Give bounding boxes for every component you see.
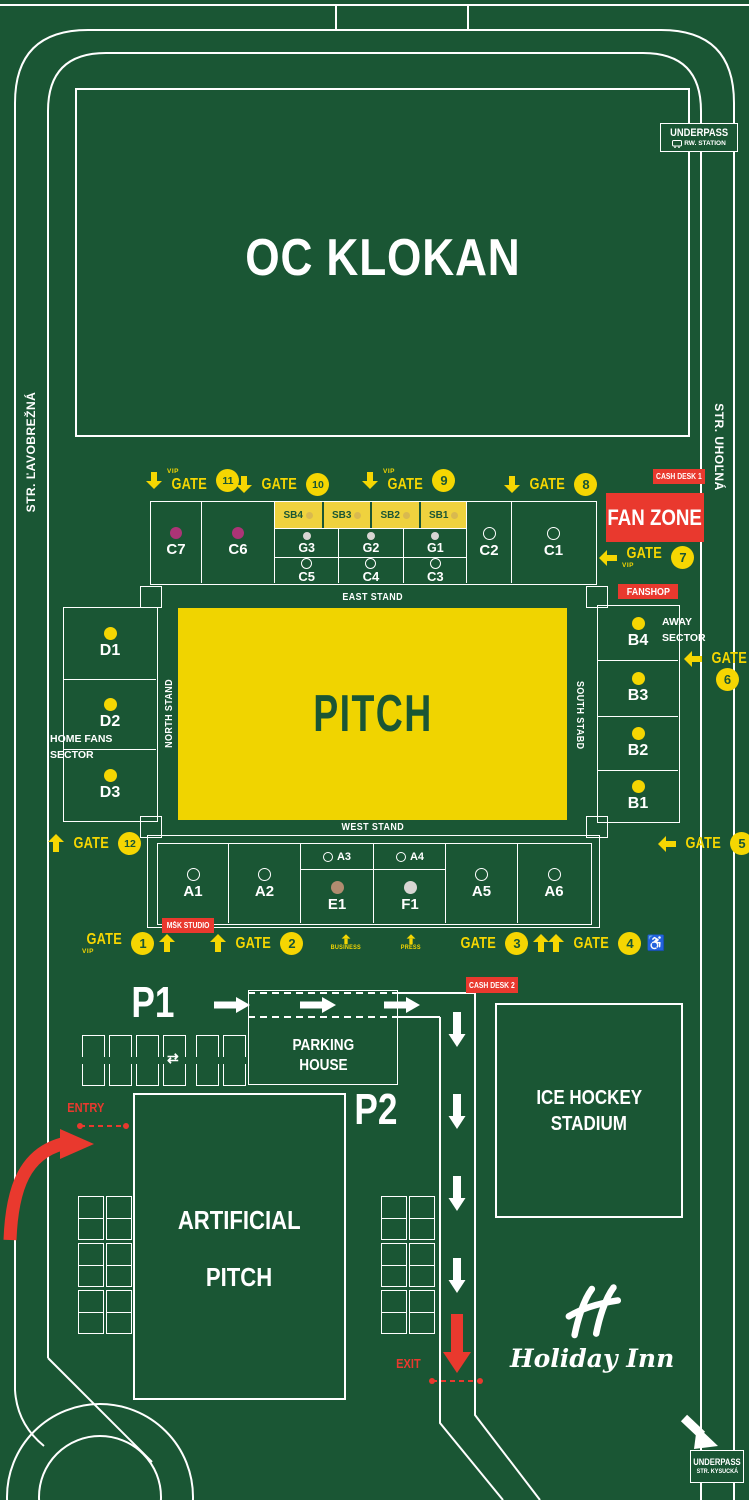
exit-arrow-icon — [451, 1314, 463, 1353]
section-label: B1 — [628, 795, 648, 813]
gate-7: GATEVIP 7 — [601, 546, 694, 570]
skybox-row: SB4 SB3 SB2 SB1 — [275, 502, 467, 528]
underpass-station-title: UNDERPASS — [670, 127, 728, 139]
underpass-kysucka-title: UNDERPASS — [693, 1457, 740, 1468]
section-label: D2 — [100, 713, 120, 731]
gate-number-8: 8 — [574, 473, 597, 496]
seat-circle-outline — [548, 868, 561, 881]
left-arrow-icon — [686, 651, 702, 668]
seat-dot-magenta — [170, 527, 182, 539]
stand-corner — [140, 586, 162, 608]
business-entrance: BUSINESS — [331, 931, 361, 951]
a-top-row: A3 A4 — [301, 844, 446, 870]
vip-label: VIP — [622, 563, 634, 570]
section-label: C6 — [228, 541, 247, 558]
street-left-label: STR. ĽAVOBREŽNÁ — [24, 377, 38, 527]
seat-dot-yellow — [104, 769, 117, 782]
exit-arrow-icon — [443, 1352, 471, 1373]
pitch-label: PITCH — [313, 684, 433, 744]
down-arrow-icon — [449, 1176, 466, 1211]
skybox-sb3: SB3 — [324, 502, 371, 528]
gate-1: GATEVIP 1 — [82, 932, 175, 956]
up-arrow-icon — [342, 935, 351, 944]
seat-dot-gold — [354, 512, 361, 519]
up-arrow-icon — [548, 935, 564, 952]
up-arrow-icon — [159, 935, 175, 952]
away-sector-label: AWAY SECTOR — [662, 615, 706, 647]
gate-number-5: 5 — [730, 832, 749, 855]
skybox-label: SB2 — [381, 510, 400, 521]
seat-circle-outline — [258, 868, 271, 881]
gate-9: VIPGATE 9 — [362, 469, 455, 493]
holiday-inn-label: Holiday Inn — [510, 1344, 670, 1373]
section-a4: A4 — [373, 844, 446, 869]
gate-word: GATE — [387, 477, 423, 493]
seat-dot-white — [303, 532, 311, 540]
two-way-arrow-icon: ⇄ — [167, 1050, 179, 1067]
section-a5: A5 — [445, 844, 517, 923]
cash-desk-1: CASH DESK 1 — [653, 469, 705, 484]
gate-2: GATE 2 — [210, 932, 303, 955]
gate-11: VIPGATE 11 — [146, 469, 239, 493]
wheelchair-icon: ♿ — [646, 936, 665, 951]
gate-word: GATE — [711, 650, 747, 668]
d-sections-block: D1 D2 D3 — [63, 607, 158, 822]
fan-zone: FAN ZONE — [606, 493, 704, 542]
gate-word: GATE — [235, 935, 271, 953]
section-a1: A1 — [158, 844, 228, 923]
section-c6: C6 — [201, 502, 274, 583]
down-arrow-icon — [449, 1012, 466, 1047]
west-stand-block: A1 A2 A3 A4 E1 F1 A5 A6 — [157, 843, 592, 925]
section-label: E1 — [328, 896, 346, 913]
section-label: C1 — [544, 542, 563, 559]
up-arrow-icon — [210, 935, 226, 952]
vip-label: VIP — [82, 949, 94, 956]
parking-house-label: PARKING — [292, 1036, 354, 1056]
section-label: D3 — [100, 784, 120, 802]
parking-house-label: HOUSE — [299, 1056, 347, 1076]
section-label: F1 — [401, 896, 419, 913]
ice-hockey-stadium: ICE HOCKEY STADIUM — [495, 1003, 683, 1218]
gate-12: GATE 12 — [48, 832, 141, 855]
section-label: G1 — [427, 541, 444, 555]
seat-dot-yellow — [104, 698, 117, 711]
gate-word: GATE — [460, 935, 496, 953]
gate-number-7: 7 — [671, 546, 694, 569]
section-f1: F1 — [373, 870, 446, 923]
section-label: A1 — [183, 883, 202, 900]
section-label: A5 — [472, 883, 491, 900]
skybox-sb4: SB4 — [275, 502, 322, 528]
section-label: A6 — [544, 883, 563, 900]
section-g1: G1 — [403, 529, 467, 557]
gate-3: GATE 3 — [456, 932, 549, 955]
g-sections-row: G3 G2 G1 — [275, 528, 467, 558]
section-b1: B1 — [598, 770, 678, 821]
gate-4: GATE 4 ♿ — [548, 932, 665, 955]
skybox-label: SB3 — [332, 510, 351, 521]
gate-5: GATE 5 — [660, 832, 749, 855]
down-arrow-icon — [449, 1258, 466, 1293]
gate-word: GATE — [573, 935, 609, 953]
oc-klokan-label: OC KLOKAN — [133, 228, 633, 288]
skybox-sb1: SB1 — [421, 502, 468, 528]
entry-arrow-icon — [10, 1144, 62, 1240]
section-c1: C1 — [511, 502, 595, 583]
gate-word: GATE — [171, 477, 207, 493]
parking-house: PARKING HOUSE — [248, 990, 398, 1085]
artificial-pitch-label: PITCH — [139, 1262, 339, 1293]
stadium-area-map: OC KLOKAN UNDERPASS RW. STATION STR. ĽAV… — [0, 0, 749, 1500]
seat-dot-yellow — [632, 617, 645, 630]
seat-circle-outline — [323, 852, 333, 862]
gate-8: GATE 8 — [504, 473, 597, 496]
seat-circle-outline — [365, 558, 376, 569]
exit-label: EXIT — [394, 1356, 423, 1371]
seat-circle-outline — [430, 558, 441, 569]
down-arrow-icon — [236, 476, 252, 493]
ice-hockey-label: ICE HOCKEY — [536, 1087, 642, 1109]
seat-dot-white — [404, 881, 417, 894]
artificial-pitch — [133, 1093, 346, 1400]
seat-circle-outline — [475, 868, 488, 881]
gate-number-9: 9 — [432, 469, 455, 492]
section-b2: B2 — [598, 716, 678, 770]
left-arrow-icon — [660, 835, 676, 852]
underpass-kysucka-subtitle: STR. KYSUCKÁ — [696, 1468, 737, 1476]
east-stand-block: C7 C6 SB4 SB3 SB2 SB1 G3 G2 G1 C5 C4 C3 — [150, 501, 597, 585]
down-arrow-icon — [362, 472, 378, 489]
ef-block: A3 A4 E1 F1 — [300, 844, 445, 923]
gate-number-6: 6 — [716, 668, 739, 691]
south-stand-label: SOUTH STABD — [574, 655, 586, 775]
section-label: C7 — [166, 541, 185, 558]
section-b3: B3 — [598, 660, 678, 716]
section-e1: E1 — [301, 870, 373, 923]
gate-word: GATE — [86, 932, 122, 948]
seat-circle-outline — [396, 852, 406, 862]
seat-dot-yellow — [632, 780, 645, 793]
seat-circle-outline — [547, 527, 560, 540]
section-c4: C4 — [338, 558, 402, 583]
gate-word: GATE — [261, 476, 297, 494]
north-stand-label: NORTH STAND — [163, 653, 175, 773]
seat-dot-white — [431, 532, 439, 540]
ice-hockey-label: STADIUM — [551, 1113, 627, 1135]
underpass-kysucka-sign: UNDERPASS STR. KYSUCKÁ — [690, 1450, 744, 1483]
seat-circle-outline — [483, 527, 496, 540]
section-a6: A6 — [517, 844, 590, 923]
seat-dot-yellow — [632, 672, 645, 685]
gate-number-2: 2 — [280, 932, 303, 955]
section-c3: C3 — [403, 558, 467, 583]
roundabout-inner — [39, 1436, 161, 1500]
gate-word: GATE — [685, 835, 721, 853]
artificial-pitch-label: ARTIFICIAL — [139, 1205, 339, 1236]
underpass-station-subtitle: RW. STATION — [672, 140, 726, 148]
seat-dot-gold — [403, 512, 410, 519]
seat-dot-yellow — [632, 727, 645, 740]
section-label: A3 — [337, 851, 351, 863]
up-arrow-icon — [48, 835, 64, 852]
underpass-station-sign: UNDERPASS RW. STATION — [660, 123, 738, 152]
gate-number-1: 1 — [131, 932, 154, 955]
c-mid-row: C5 C4 C3 — [275, 558, 467, 583]
seat-circle-outline — [301, 558, 312, 569]
seat-dot-yellow — [104, 627, 117, 640]
section-label: C2 — [479, 542, 498, 559]
section-label: D1 — [100, 642, 120, 660]
roundabout-outer — [7, 1404, 193, 1500]
skybox-sb2: SB2 — [372, 502, 419, 528]
holiday-inn-logo-icon — [553, 1282, 625, 1342]
section-label: G2 — [363, 541, 380, 555]
press-label: PRESS — [401, 944, 421, 951]
seat-dot-white — [367, 532, 375, 540]
gate-number-3: 3 — [505, 932, 528, 955]
seat-dot-gold — [306, 512, 313, 519]
east-stand-middle: SB4 SB3 SB2 SB1 G3 G2 G1 C5 C4 C3 — [274, 502, 466, 583]
section-label: C3 — [427, 569, 444, 584]
east-stand-label: EAST STAND — [298, 591, 448, 603]
p2-label: P2 — [349, 1085, 403, 1135]
section-label: B2 — [628, 742, 648, 760]
underpass-arrow-icon — [694, 1426, 718, 1449]
section-a2: A2 — [228, 844, 300, 923]
gate-10: GATE 10 — [236, 473, 329, 496]
down-arrow-icon — [449, 1094, 466, 1129]
section-c7: C7 — [151, 502, 201, 583]
left-arrow-icon — [601, 549, 617, 566]
pitch: PITCH — [178, 608, 567, 820]
section-c2: C2 — [466, 502, 511, 583]
section-c5: C5 — [275, 558, 338, 583]
down-arrow-icon — [146, 472, 162, 489]
street-right-label: STR. UHOĽNÁ — [712, 372, 726, 522]
section-d1: D1 — [64, 608, 156, 679]
section-label: G3 — [298, 541, 315, 555]
west-stand-label: WEST STAND — [298, 821, 448, 833]
right-arrow-icon — [214, 997, 250, 1013]
cash-desk-2: CASH DESK 2 — [466, 977, 518, 993]
section-label: B4 — [628, 632, 648, 650]
fanshop: FANSHOP — [618, 584, 678, 599]
business-label: BUSINESS — [331, 944, 361, 951]
gate-number-4: 4 — [618, 932, 641, 955]
train-icon — [672, 140, 682, 148]
section-a3: A3 — [301, 844, 373, 869]
seat-dot-brown — [331, 881, 344, 894]
gate-word: GATE — [73, 835, 109, 853]
section-label: C5 — [298, 569, 315, 584]
section-label: A4 — [410, 851, 424, 863]
gate-number-12: 12 — [118, 832, 141, 855]
gate-word: GATE — [626, 546, 662, 562]
up-arrow-icon — [407, 935, 416, 944]
seat-dot-gold — [451, 512, 458, 519]
skybox-label: SB4 — [284, 510, 303, 521]
seat-circle-outline — [187, 868, 200, 881]
press-entrance: PRESS — [397, 931, 425, 951]
section-label: A2 — [255, 883, 274, 900]
gate-6: GATE — [686, 650, 749, 668]
section-g3: G3 — [275, 529, 338, 557]
gate-word: GATE — [529, 476, 565, 494]
msk-studio: MŠK STUDIO — [162, 918, 214, 933]
section-label: B3 — [628, 687, 648, 705]
p1-label: P1 — [126, 978, 180, 1028]
entry-arrow-icon — [60, 1129, 94, 1159]
entry-label: ENTRY — [64, 1100, 108, 1115]
section-label: C4 — [363, 569, 380, 584]
seat-dot-magenta — [232, 527, 244, 539]
section-g2: G2 — [338, 529, 402, 557]
gate-number-10: 10 — [306, 473, 329, 496]
home-fans-label: HOME FANS SECTOR — [50, 731, 112, 764]
down-arrow-icon — [504, 476, 520, 493]
skybox-label: SB1 — [429, 510, 448, 521]
